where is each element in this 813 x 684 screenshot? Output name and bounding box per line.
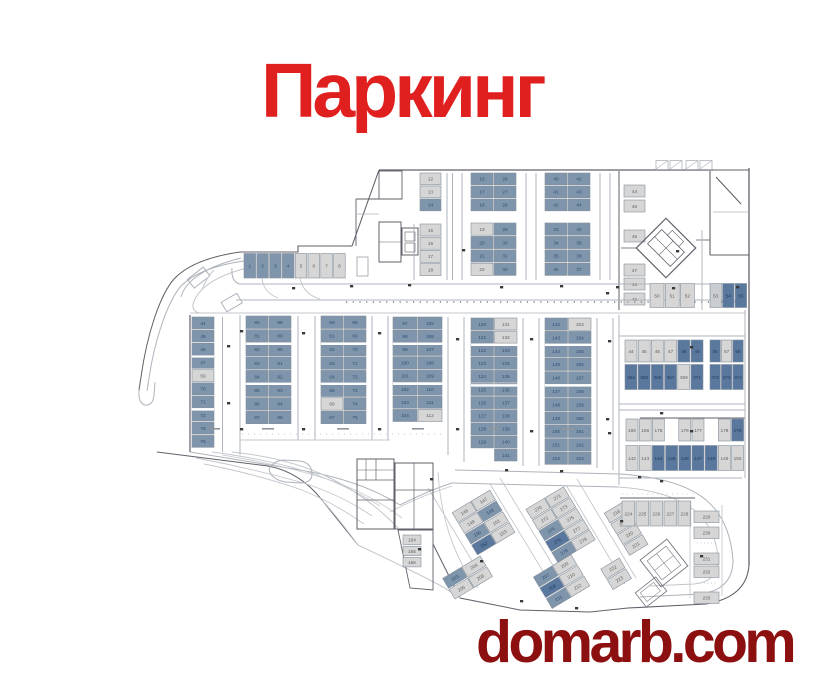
svg-text:18: 18 [428,267,434,272]
svg-text:148: 148 [707,456,715,461]
svg-text:143: 143 [641,456,649,461]
svg-text:6: 6 [312,264,315,269]
svg-text:139: 139 [502,427,510,432]
svg-text:371: 371 [693,375,701,380]
svg-text:152: 152 [552,456,560,461]
svg-text:42: 42 [553,203,559,208]
svg-text:131: 131 [502,322,510,327]
svg-text:162: 162 [576,443,584,448]
svg-text:38: 38 [576,254,582,259]
svg-text:148: 148 [552,402,560,407]
svg-text:92: 92 [277,374,283,379]
svg-text:82: 82 [254,347,260,352]
svg-text:8: 8 [338,264,341,269]
svg-text:156: 156 [576,362,584,367]
svg-text:146: 146 [552,376,560,381]
svg-text:71: 71 [200,400,206,405]
svg-text:60: 60 [329,320,335,325]
svg-text:120: 120 [478,322,486,327]
svg-text:178: 178 [720,428,728,433]
svg-text:103: 103 [401,400,409,405]
svg-text:95: 95 [277,415,283,420]
svg-text:142: 142 [628,456,636,461]
svg-text:226: 226 [652,511,660,516]
svg-text:166: 166 [641,428,649,433]
svg-text:21: 21 [479,254,485,259]
svg-text:44: 44 [632,189,638,194]
svg-text:129: 129 [478,440,486,445]
svg-text:143: 143 [552,335,560,340]
svg-text:102: 102 [401,387,409,392]
svg-text:2: 2 [261,264,264,269]
svg-text:166: 166 [408,560,416,565]
svg-text:145: 145 [668,456,676,461]
svg-text:94: 94 [277,402,283,407]
svg-text:132: 132 [502,335,510,340]
svg-text:14: 14 [428,203,434,208]
svg-text:71: 71 [352,361,358,366]
svg-text:145: 145 [552,362,560,367]
svg-text:20: 20 [479,240,485,245]
svg-text:224: 224 [624,511,632,516]
svg-text:49: 49 [694,349,700,354]
svg-text:36: 36 [553,267,559,272]
svg-text:29: 29 [502,227,508,232]
svg-text:81: 81 [254,334,260,339]
svg-text:367: 367 [667,375,675,380]
svg-text:62: 62 [329,347,335,352]
svg-text:4: 4 [287,264,290,269]
svg-text:32: 32 [502,267,508,272]
svg-text:73: 73 [352,388,358,393]
svg-text:105: 105 [426,321,434,326]
svg-text:125: 125 [478,387,486,392]
svg-text:140: 140 [502,440,510,445]
svg-text:122: 122 [478,348,486,353]
svg-text:232: 232 [703,570,711,575]
svg-text:159: 159 [576,402,584,407]
svg-text:69: 69 [352,334,358,339]
svg-text:61: 61 [329,334,335,339]
svg-text:135: 135 [502,374,510,379]
svg-text:26: 26 [502,177,508,182]
svg-text:84: 84 [254,374,260,379]
svg-text:40: 40 [576,227,582,232]
svg-text:108: 108 [426,361,434,366]
svg-text:47: 47 [632,268,638,273]
svg-text:144: 144 [654,456,662,461]
svg-text:42: 42 [576,177,582,182]
svg-text:72: 72 [352,374,358,379]
svg-text:142: 142 [552,322,560,327]
svg-text:35: 35 [553,254,559,259]
svg-text:16: 16 [428,241,434,246]
svg-text:110: 110 [426,387,434,392]
svg-text:179: 179 [734,428,742,433]
svg-text:91: 91 [277,361,283,366]
svg-text:22: 22 [479,267,485,272]
svg-text:372: 372 [711,375,719,380]
svg-text:365: 365 [640,375,648,380]
svg-text:43: 43 [576,190,582,195]
svg-text:19: 19 [479,227,485,232]
svg-text:45: 45 [200,334,206,339]
svg-text:106: 106 [426,334,434,339]
svg-text:53: 53 [713,293,719,298]
svg-text:133: 133 [502,348,510,353]
svg-text:98: 98 [402,334,408,339]
svg-text:51: 51 [670,293,676,298]
svg-text:225: 225 [638,511,646,516]
svg-text:177: 177 [694,428,702,433]
svg-text:17: 17 [479,190,485,195]
svg-text:44: 44 [576,203,582,208]
svg-text:68: 68 [352,320,358,325]
svg-text:74: 74 [352,402,358,407]
svg-text:54: 54 [726,293,732,298]
svg-text:126: 126 [478,400,486,405]
svg-text:85: 85 [254,388,260,393]
svg-text:165: 165 [408,549,416,554]
svg-text:121: 121 [478,335,486,340]
svg-text:5: 5 [300,264,303,269]
svg-text:52: 52 [685,293,691,298]
svg-text:48: 48 [681,349,687,354]
svg-text:99: 99 [402,347,408,352]
svg-text:144: 144 [552,349,560,354]
svg-text:123: 123 [478,361,486,366]
svg-text:1: 1 [248,264,251,269]
svg-text:3: 3 [274,264,277,269]
svg-text:90: 90 [277,347,283,352]
svg-text:15: 15 [428,228,434,233]
svg-text:134: 134 [502,361,510,366]
svg-text:128: 128 [478,427,486,432]
svg-text:366: 366 [653,375,661,380]
svg-text:45: 45 [632,234,638,239]
svg-text:33: 33 [553,227,559,232]
svg-text:147: 147 [552,389,560,394]
svg-text:16: 16 [479,177,485,182]
svg-text:87: 87 [254,415,260,420]
svg-text:374: 374 [734,375,742,380]
svg-text:97: 97 [402,321,408,326]
svg-text:155: 155 [576,349,584,354]
svg-text:59: 59 [200,373,206,378]
svg-text:40: 40 [553,177,559,182]
svg-text:18: 18 [479,203,485,208]
svg-text:63: 63 [329,361,335,366]
svg-text:141: 141 [502,453,510,458]
svg-text:149: 149 [552,416,560,421]
svg-text:12: 12 [428,177,434,182]
svg-text:56: 56 [713,349,719,354]
svg-text:157: 157 [576,376,584,381]
svg-text:83: 83 [254,361,260,366]
svg-text:70: 70 [352,347,358,352]
svg-text:227: 227 [666,511,674,516]
svg-text:138: 138 [502,414,510,419]
svg-text:37: 37 [576,267,582,272]
svg-text:112: 112 [426,413,434,418]
svg-text:150: 150 [734,456,742,461]
svg-text:164: 164 [408,538,416,543]
svg-text:55: 55 [738,293,744,298]
svg-text:228: 228 [680,511,688,516]
svg-text:64: 64 [329,374,335,379]
svg-text:80: 80 [254,320,260,325]
svg-text:160: 160 [576,416,584,421]
svg-text:373: 373 [723,375,731,380]
svg-text:111: 111 [426,400,434,405]
svg-text:57: 57 [724,349,730,354]
svg-text:93: 93 [277,388,283,393]
svg-text:153: 153 [576,322,584,327]
svg-text:233: 233 [703,596,711,601]
svg-text:176: 176 [681,428,689,433]
svg-text:67: 67 [329,415,335,420]
svg-text:369: 369 [680,375,688,380]
svg-text:150: 150 [552,429,560,434]
svg-text:72: 72 [200,413,206,418]
svg-text:47: 47 [668,349,674,354]
svg-text:151: 151 [552,443,560,448]
svg-text:75: 75 [200,426,206,431]
svg-text:46: 46 [632,204,638,209]
svg-text:7: 7 [325,264,328,269]
svg-text:163: 163 [576,456,584,461]
svg-text:28: 28 [502,203,508,208]
svg-text:46: 46 [655,349,661,354]
svg-text:147: 147 [694,456,702,461]
svg-text:149: 149 [720,456,728,461]
svg-text:100: 100 [401,361,409,366]
svg-text:109: 109 [426,374,434,379]
svg-text:65: 65 [329,388,335,393]
svg-text:70: 70 [200,387,206,392]
svg-text:229: 229 [703,515,711,520]
svg-text:137: 137 [502,400,510,405]
svg-text:364: 364 [627,375,635,380]
svg-text:66: 66 [329,402,335,407]
svg-text:89: 89 [277,334,283,339]
svg-text:17: 17 [428,254,434,259]
svg-text:107: 107 [426,347,434,352]
svg-text:27: 27 [502,190,508,195]
svg-text:31: 31 [502,254,508,259]
svg-text:13: 13 [428,190,434,195]
svg-text:34: 34 [553,240,559,245]
svg-text:146: 146 [681,456,689,461]
svg-text:158: 158 [576,389,584,394]
svg-text:39: 39 [576,240,582,245]
svg-text:44: 44 [628,349,634,354]
svg-text:230: 230 [703,531,711,536]
svg-text:165: 165 [628,428,636,433]
svg-text:30: 30 [502,240,508,245]
svg-text:45: 45 [642,349,648,354]
svg-text:176: 176 [654,428,662,433]
svg-text:50: 50 [654,293,660,298]
svg-text:46: 46 [200,347,206,352]
svg-text:154: 154 [576,335,584,340]
svg-text:76: 76 [200,439,206,444]
svg-text:41: 41 [553,190,559,195]
svg-text:88: 88 [277,320,283,325]
svg-text:47: 47 [200,360,206,365]
svg-text:231: 231 [703,557,711,562]
svg-text:136: 136 [502,387,510,392]
svg-text:104: 104 [401,413,409,418]
svg-text:161: 161 [576,429,584,434]
svg-text:127: 127 [478,414,486,419]
svg-text:86: 86 [254,402,260,407]
svg-text:58: 58 [735,349,741,354]
svg-text:75: 75 [352,415,358,420]
svg-text:44: 44 [200,321,206,326]
svg-text:124: 124 [478,374,486,379]
svg-text:101: 101 [401,374,409,379]
